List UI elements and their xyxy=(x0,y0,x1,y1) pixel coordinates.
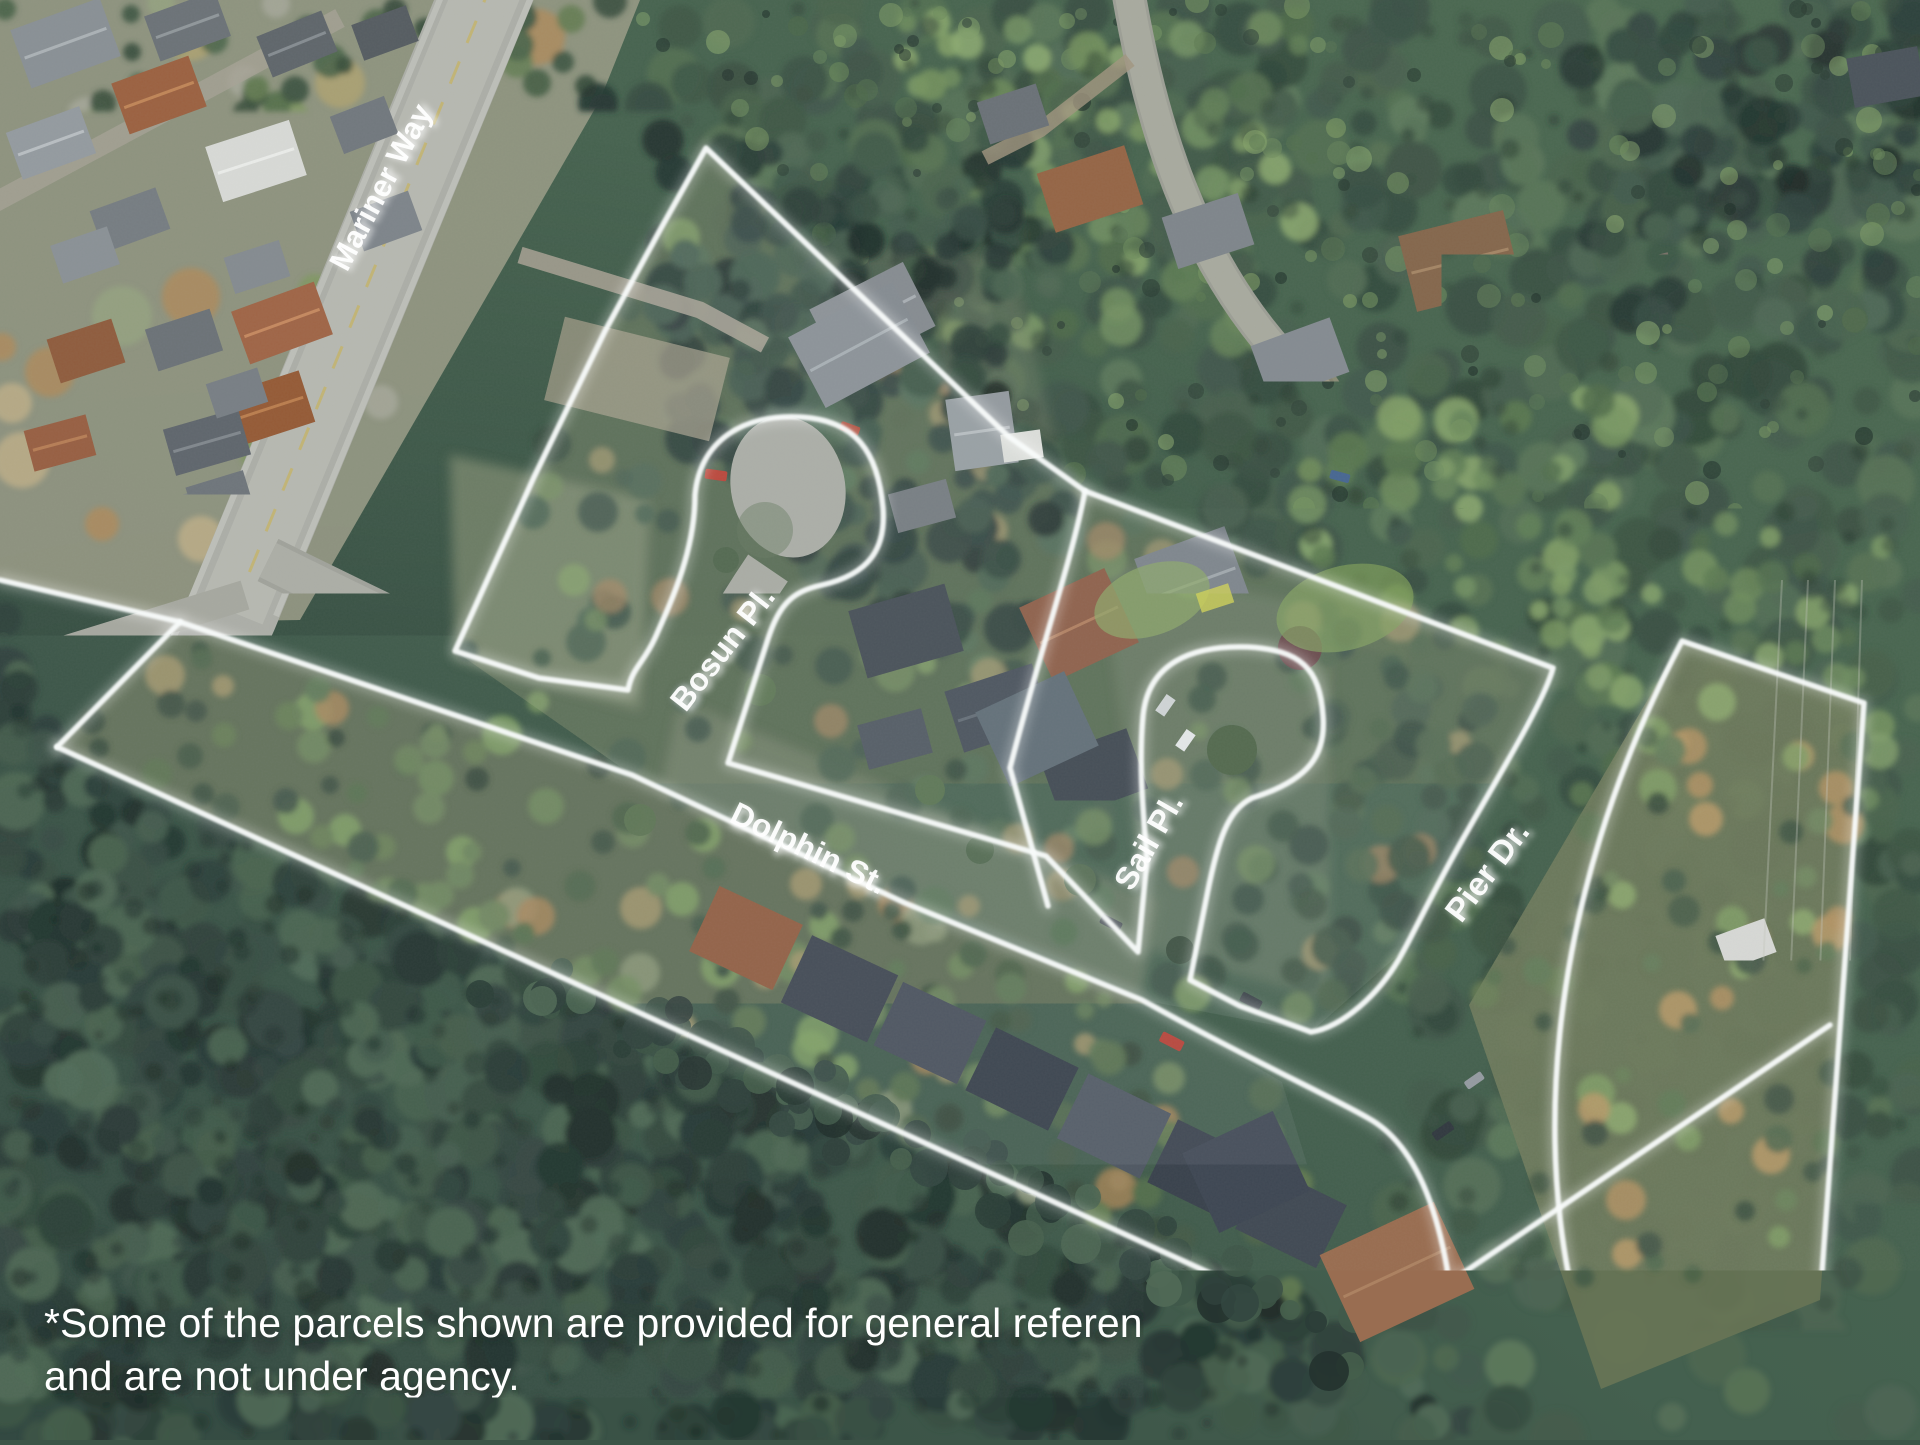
svg-text:and are not under agency.: and are not under agency. xyxy=(44,1353,520,1399)
svg-text:*Some of the parcels shown are: *Some of the parcels shown are provided … xyxy=(44,1300,1186,1346)
